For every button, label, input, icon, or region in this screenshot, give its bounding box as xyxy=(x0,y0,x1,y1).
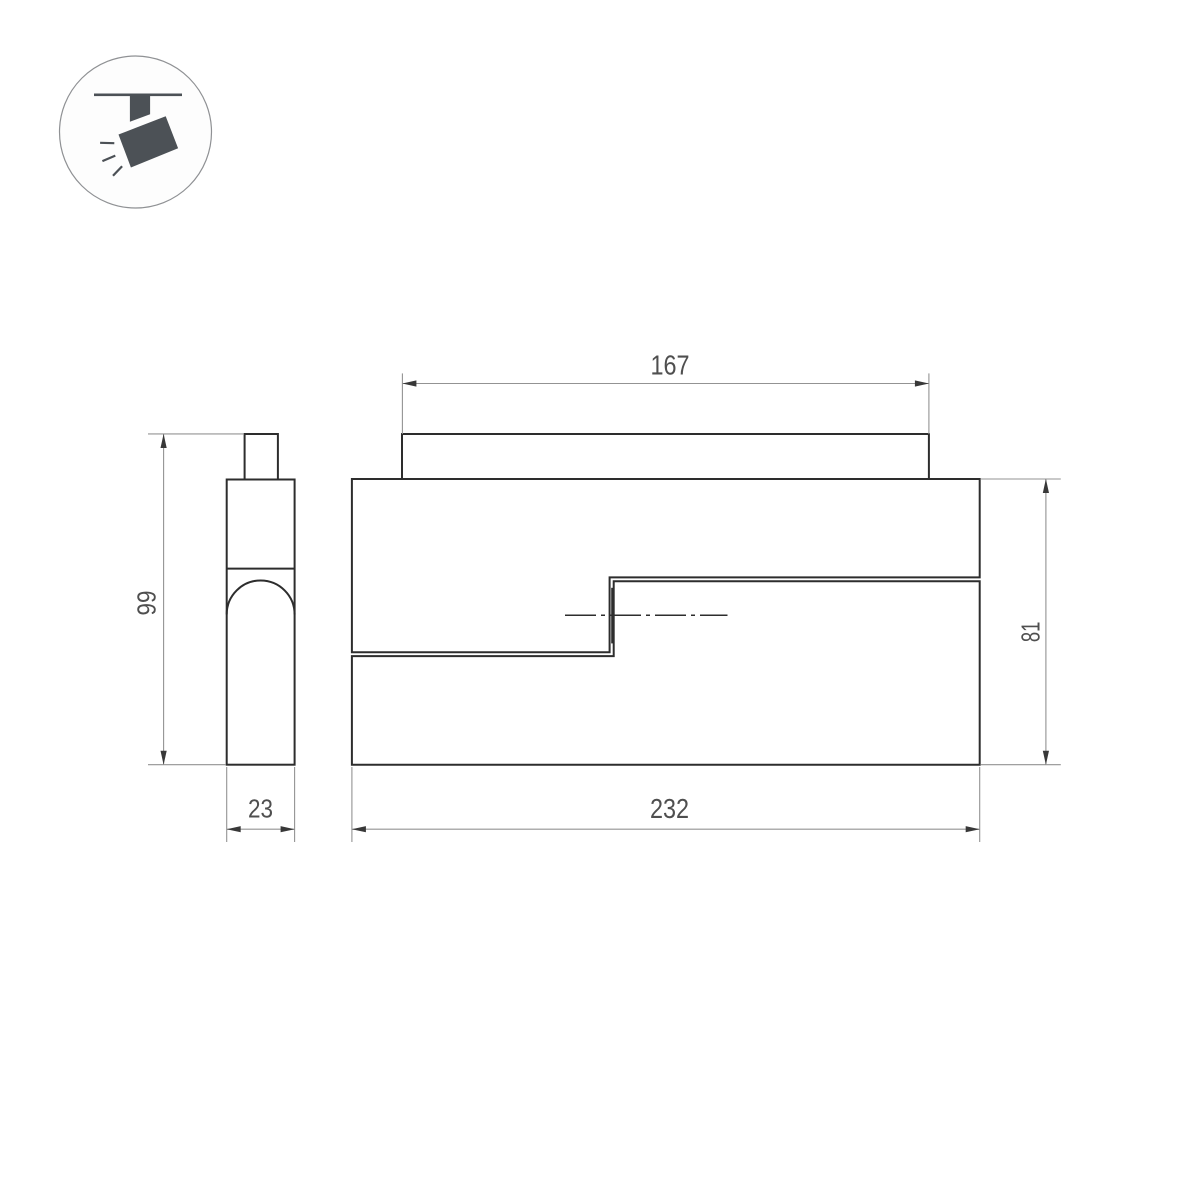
svg-text:23: 23 xyxy=(248,794,273,824)
svg-text:81: 81 xyxy=(1016,622,1046,643)
svg-text:99: 99 xyxy=(132,591,162,616)
svg-text:232: 232 xyxy=(650,793,689,824)
svg-text:167: 167 xyxy=(651,350,690,381)
